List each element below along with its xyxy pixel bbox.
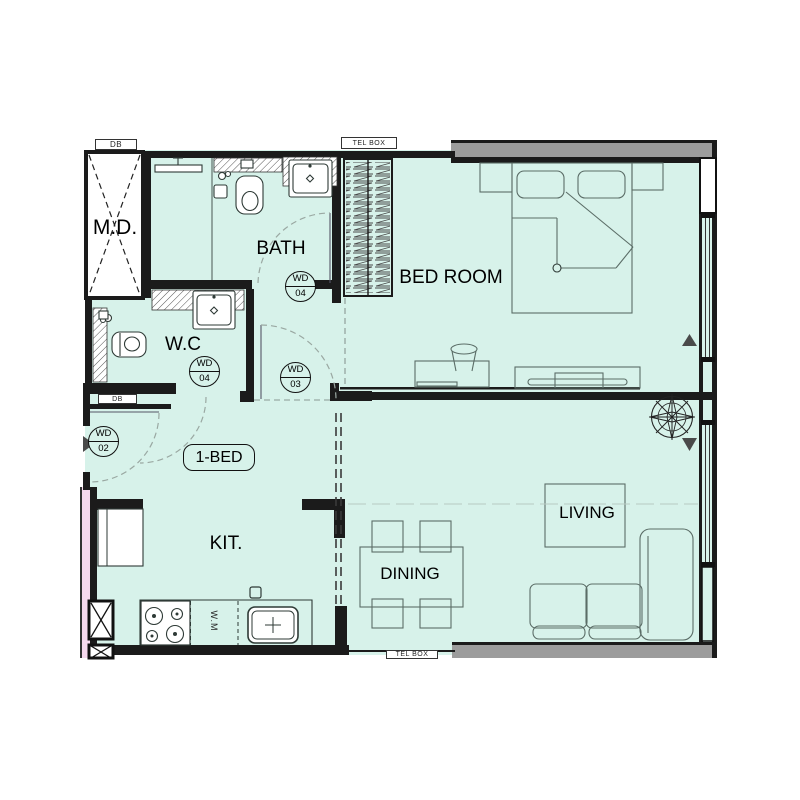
db-box-top: DB — [95, 139, 137, 150]
toilet-icon — [112, 332, 146, 357]
door-tag-wd02: WD 02 — [88, 426, 119, 457]
room-label-bath: BATH — [256, 238, 305, 260]
telbox-bottom: TEL BOX — [386, 650, 438, 659]
room-label-kitchen: KIT. — [210, 533, 243, 555]
room-label-living: LIVING — [559, 503, 615, 523]
room-label-wc: W.C — [165, 334, 201, 356]
room-label-md: M.D. — [93, 216, 137, 240]
room-label-bedroom: BED ROOM — [399, 267, 502, 289]
fridge-icon — [98, 509, 143, 566]
wardrobe — [344, 159, 392, 296]
room-label-dining: DINING — [380, 564, 440, 584]
door-tag-wd04-bath: WD 04 — [285, 271, 316, 302]
door-tag-wd03: WD 03 — [280, 362, 311, 393]
shaft-boxes — [89, 601, 113, 658]
unit-type-tag: 1-BED — [183, 444, 255, 471]
db-box-hall: DB — [98, 394, 137, 404]
shower-icon — [155, 165, 202, 172]
door-tag-wd04-wc: WD 04 — [189, 356, 220, 387]
toilet-icon — [236, 176, 263, 214]
floor-plan: M.D. BATH W.C BED ROOM KIT. DINING LIVIN… — [0, 0, 800, 800]
telbox-top: TEL BOX — [341, 137, 397, 149]
washing-machine-label: W.M — [209, 607, 219, 635]
